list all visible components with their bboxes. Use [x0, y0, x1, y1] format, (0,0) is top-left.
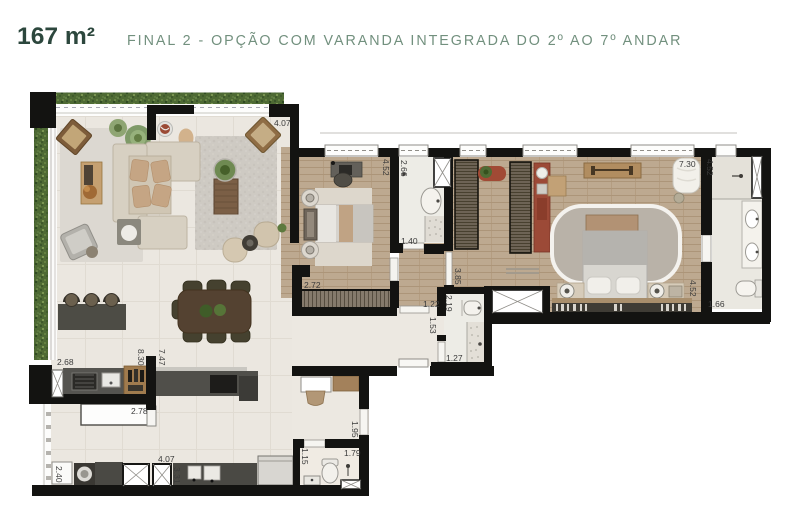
- svg-text:3.31: 3.31: [172, 467, 182, 484]
- svg-text:8.30: 8.30: [136, 349, 146, 366]
- svg-text:7.30: 7.30: [679, 159, 696, 169]
- svg-text:2.40: 2.40: [54, 466, 64, 483]
- svg-text:4.52: 4.52: [688, 280, 698, 297]
- svg-text:1.22: 1.22: [423, 299, 440, 309]
- svg-text:2.19: 2.19: [444, 295, 454, 312]
- svg-text:4.52: 4.52: [705, 159, 715, 176]
- svg-text:3.85: 3.85: [453, 268, 463, 285]
- svg-text:1.27: 1.27: [446, 353, 463, 363]
- svg-text:FINAL 2 - OPÇÃO COM VARANDA IN: FINAL 2 - OPÇÃO COM VARANDA INTEGRADA DO…: [127, 32, 682, 49]
- svg-text:2.78: 2.78: [131, 406, 148, 416]
- svg-text:4.07: 4.07: [274, 118, 291, 128]
- svg-text:2.72: 2.72: [304, 280, 321, 290]
- svg-text:7.47: 7.47: [157, 349, 167, 366]
- svg-text:167 m²: 167 m²: [17, 23, 95, 50]
- svg-text:4.52: 4.52: [381, 159, 391, 176]
- svg-text:2.68: 2.68: [57, 357, 74, 367]
- svg-text:1.95: 1.95: [350, 421, 360, 438]
- svg-text:1.66: 1.66: [708, 299, 725, 309]
- svg-text:1.53: 1.53: [428, 317, 438, 334]
- svg-text:2.66: 2.66: [399, 160, 409, 177]
- svg-text:1.79: 1.79: [344, 448, 361, 458]
- svg-text:1.40: 1.40: [401, 236, 418, 246]
- svg-text:4.07: 4.07: [158, 454, 175, 464]
- svg-text:1.15: 1.15: [300, 448, 310, 465]
